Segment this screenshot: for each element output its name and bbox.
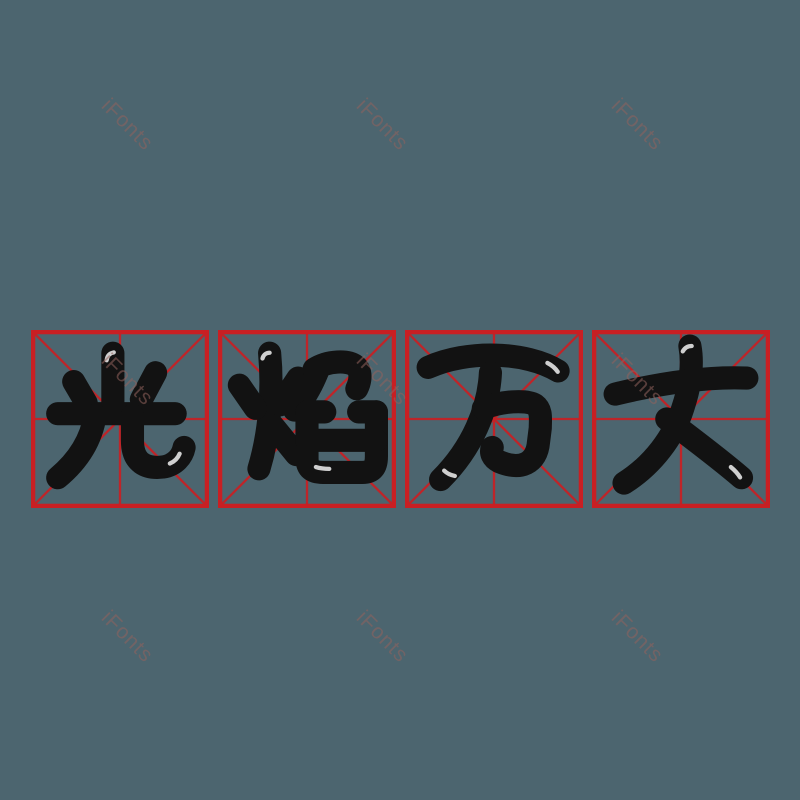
ifonts-watermark: iFonts: [606, 606, 668, 668]
font-preview-canvas: 光: [0, 0, 800, 800]
ifonts-watermark: iFonts: [96, 94, 158, 156]
ifonts-watermark: iFonts: [96, 606, 158, 668]
ifonts-watermark: iFonts: [351, 606, 413, 668]
grid-box-yan: 焰: [218, 330, 396, 508]
glyph-strokes: [239, 353, 376, 473]
ifonts-watermark: iFonts: [606, 94, 668, 156]
character-grid-row: 光: [31, 330, 770, 508]
grid-box-guang: 光: [31, 330, 209, 508]
grid-box-wan: 万: [405, 330, 583, 508]
character-art-wan: [405, 330, 583, 508]
character-art-guang: [31, 330, 209, 508]
grid-box-zhang: 丈: [592, 330, 770, 508]
character-art-zhang: [592, 330, 770, 508]
character-art-yan: [218, 330, 396, 508]
ifonts-watermark: iFonts: [351, 94, 413, 156]
